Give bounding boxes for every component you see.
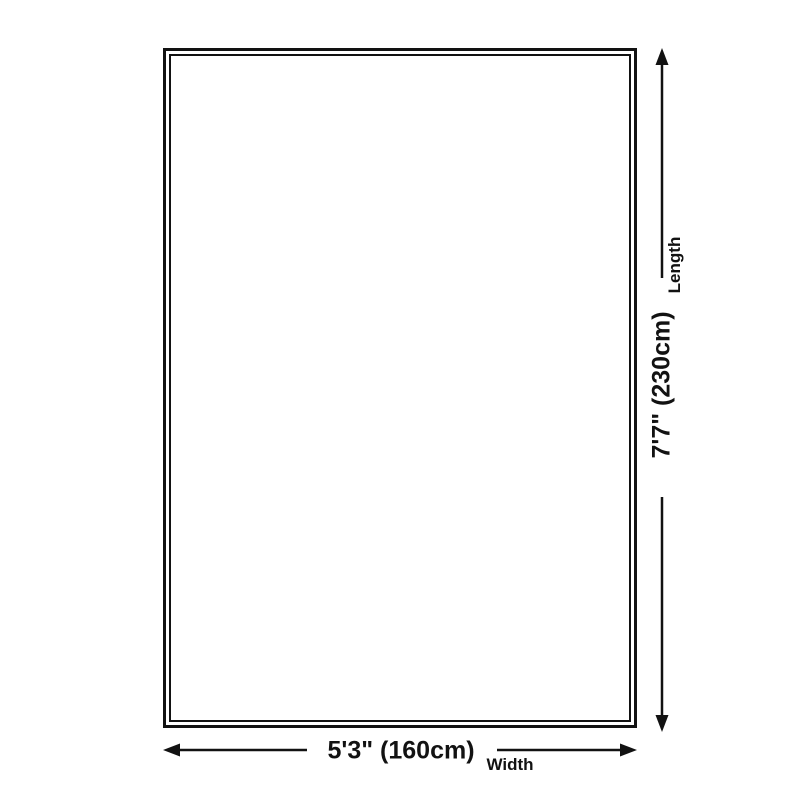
width-label: Width [486,755,533,775]
product-outline-inner [169,54,631,722]
width-value: 5'3" (160cm) [327,737,474,766]
dimension-diagram: 5'3" (160cm) Width 7'7" (230cm) Length [0,0,800,800]
product-outline [163,48,637,728]
arrow-right-icon [620,744,637,757]
arrow-down-icon [656,715,669,732]
length-value: 7'7" (230cm) [648,311,677,458]
length-label: Length [665,237,685,294]
